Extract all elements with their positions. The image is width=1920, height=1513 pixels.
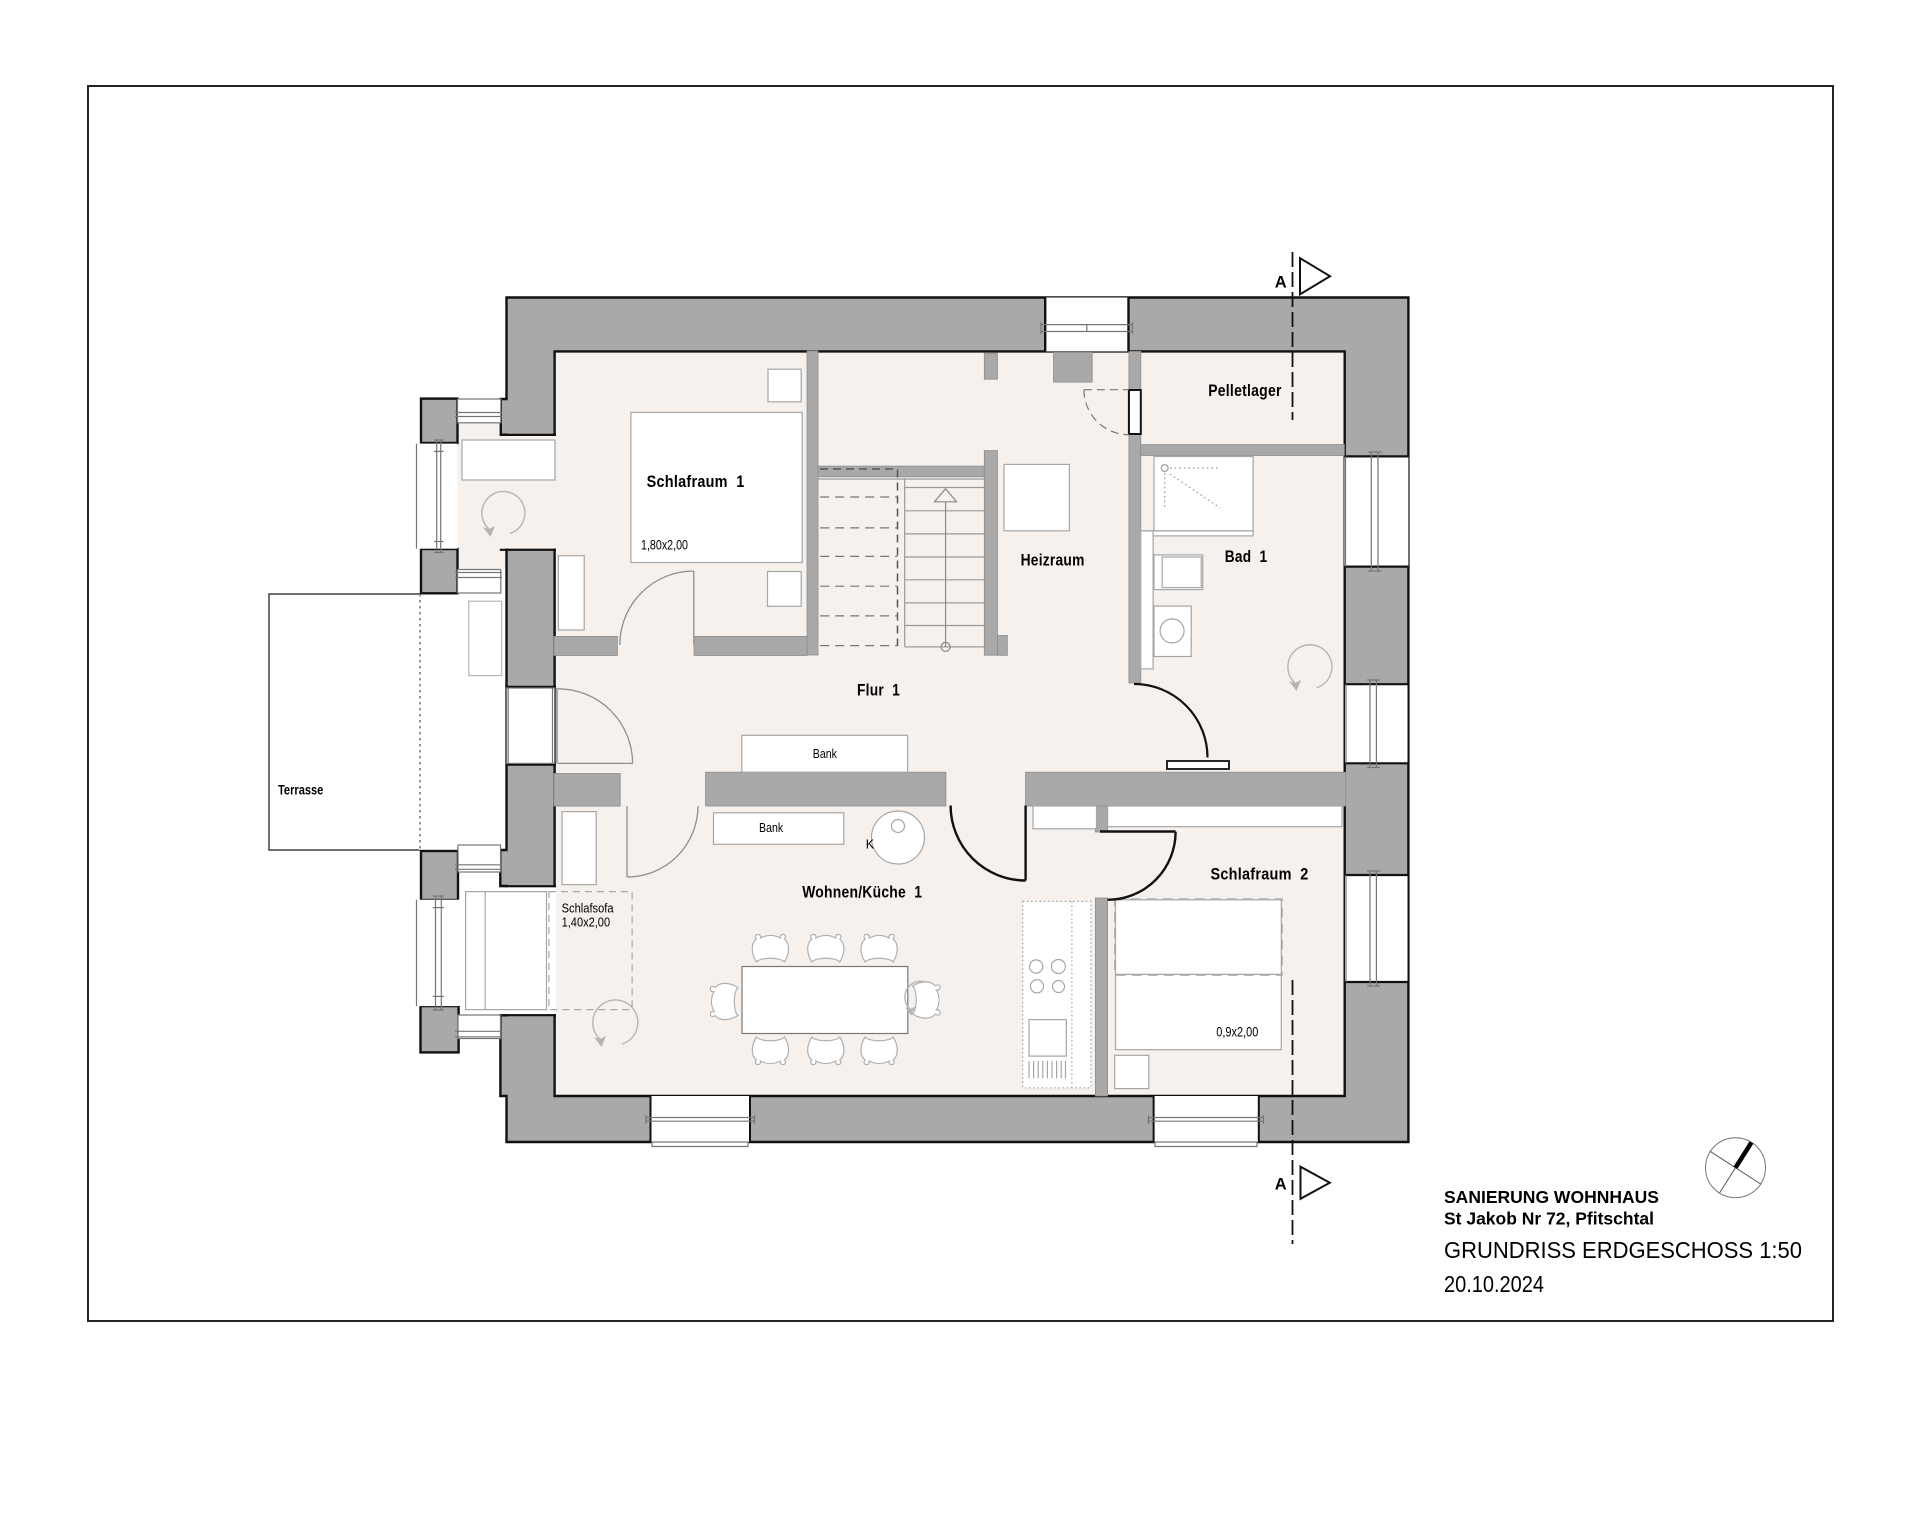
svg-text:Terrasse: Terrasse: [278, 782, 323, 798]
svg-text:Schlafraum 2: Schlafraum 2: [1211, 865, 1309, 884]
svg-text:Bank: Bank: [813, 747, 838, 761]
svg-text:Wohnen/Küche 1: Wohnen/Küche 1: [802, 883, 922, 902]
svg-text:1,40x2,00: 1,40x2,00: [562, 915, 611, 929]
svg-text:20.10.2024: 20.10.2024: [1444, 1271, 1544, 1297]
svg-text:A: A: [1275, 273, 1287, 291]
svg-text:GRUNDRISS ERDGESCHOSS 1:50: GRUNDRISS ERDGESCHOSS 1:50: [1444, 1237, 1802, 1263]
svg-text:1,80x2,00: 1,80x2,00: [641, 537, 688, 553]
svg-text:Flur 1: Flur 1: [857, 681, 900, 700]
svg-text:Bank: Bank: [759, 821, 784, 835]
svg-text:SANIERUNG WOHNHAUS: SANIERUNG WOHNHAUS: [1444, 1187, 1659, 1207]
svg-text:Heizraum: Heizraum: [1021, 551, 1085, 570]
svg-text:0,9x2,00: 0,9x2,00: [1216, 1024, 1258, 1040]
svg-text:K: K: [866, 838, 875, 852]
svg-text:Schlafsofa: Schlafsofa: [562, 902, 614, 916]
svg-text:St Jakob Nr 72, Pfitschtal: St Jakob Nr 72, Pfitschtal: [1444, 1208, 1654, 1228]
svg-text:Pelletlager: Pelletlager: [1208, 381, 1282, 400]
svg-text:Schlafraum 1: Schlafraum 1: [647, 472, 745, 491]
svg-text:Bad 1: Bad 1: [1225, 547, 1268, 566]
svg-text:A: A: [1275, 1175, 1287, 1193]
